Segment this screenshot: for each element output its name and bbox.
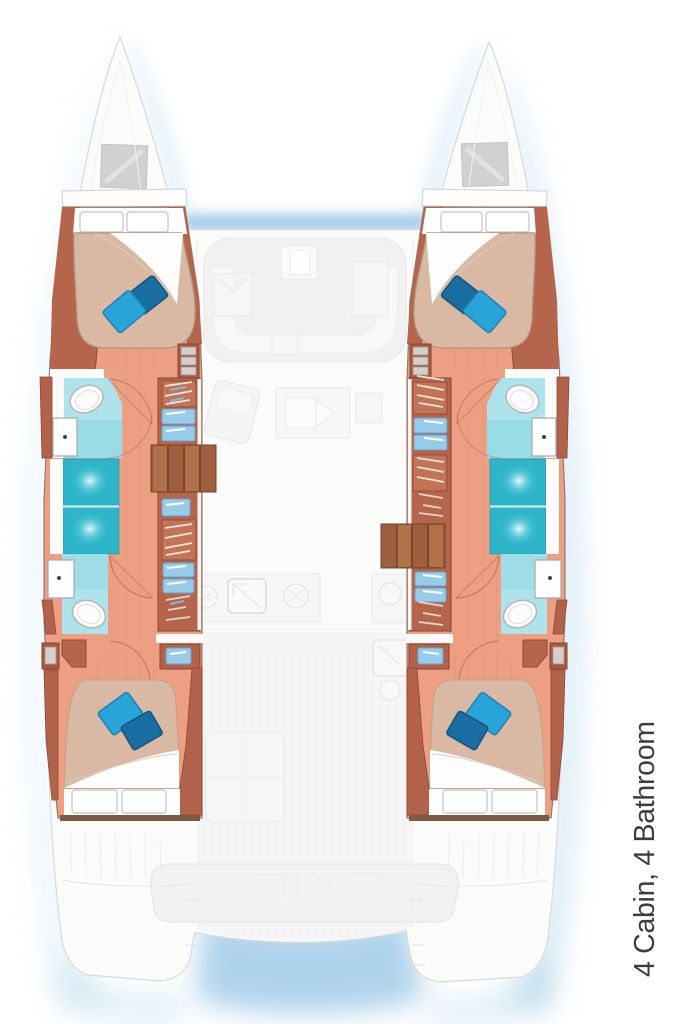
svg-text:4 Cabin, 4 Bathroom: 4 Cabin, 4 Bathroom bbox=[629, 721, 661, 977]
